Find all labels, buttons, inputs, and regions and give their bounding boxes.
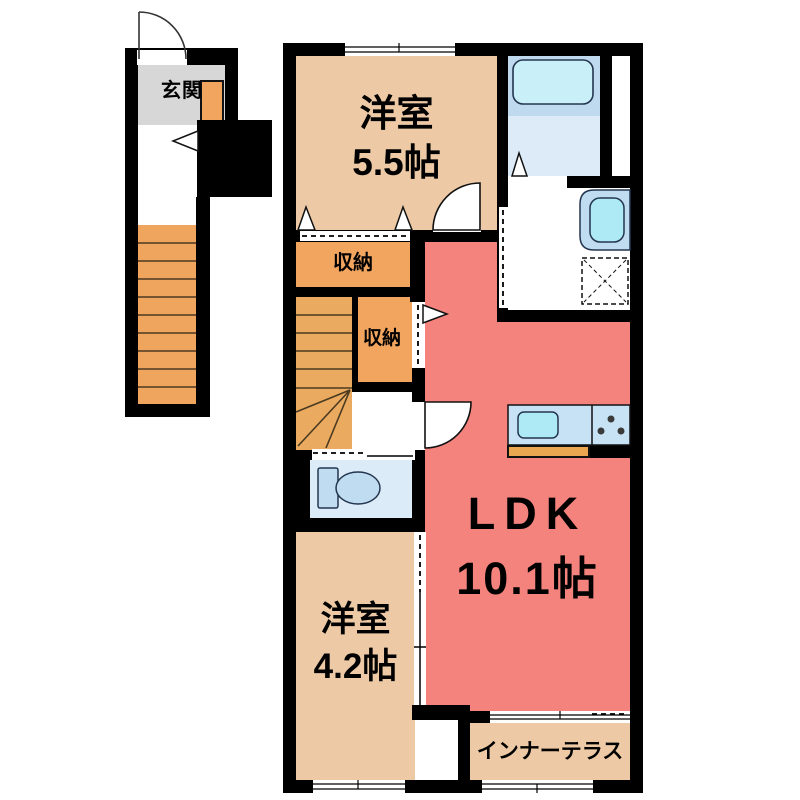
lower-closet-door	[413, 303, 423, 367]
wall	[283, 43, 643, 56]
wall	[497, 56, 508, 188]
wall	[458, 711, 470, 780]
wall	[497, 310, 630, 322]
genkan-label: 玄関	[138, 81, 226, 102]
wall	[296, 458, 310, 518]
wall	[283, 43, 296, 793]
wall	[196, 197, 210, 417]
wall	[125, 48, 138, 417]
wall	[630, 43, 643, 793]
washroom	[508, 188, 630, 310]
entrance-closet-label: 収納	[197, 148, 272, 166]
wall	[470, 711, 490, 723]
outdoor-stairs	[138, 225, 196, 404]
wall	[296, 518, 425, 532]
wall	[412, 368, 425, 402]
window-bottom-bedroom	[313, 780, 405, 793]
wall	[590, 445, 630, 458]
wall	[296, 287, 410, 297]
ldk-type: LDK	[425, 490, 630, 537]
ldk-label: LDK 10.1帖	[425, 490, 630, 603]
wall	[567, 176, 643, 188]
wall	[600, 56, 612, 176]
floor-plan: 玄関 収納 洋室 5.5帖 収納 収納 LDK 10.1帖 洋室 4.2帖 イン…	[0, 0, 800, 800]
kitchen-counter-front	[507, 445, 590, 458]
ldk-size: 10.1帖	[425, 555, 630, 602]
indoor-stairs	[296, 297, 352, 450]
window-ldk-terrace	[490, 711, 630, 723]
wall	[225, 57, 238, 125]
kitchen-counter	[508, 405, 592, 445]
entrance-hall	[138, 125, 196, 225]
bedroom-5-5-door-opening	[433, 226, 481, 232]
bedroom-4-2-type: 洋室	[296, 602, 415, 639]
bedroom-5-5-type: 洋室	[296, 95, 497, 134]
toilet-sliding-door	[312, 449, 415, 460]
bedroom-4-2-label: 洋室 4.2帖	[296, 602, 415, 686]
stair-landing	[358, 392, 412, 450]
inner-terrace-label: インナーテラス	[470, 741, 630, 763]
wall	[410, 230, 425, 302]
window-top	[345, 43, 455, 56]
washroom-sliding-door	[499, 207, 508, 308]
toilet-room	[310, 460, 417, 518]
bathroom-door-opening	[508, 176, 567, 188]
bedroom-4-2-size: 4.2帖	[296, 649, 415, 686]
entrance-door-opening	[137, 50, 187, 65]
upper-closet-label: 収納	[296, 253, 410, 274]
bedroom-5-5-size: 5.5帖	[296, 144, 497, 183]
bathroom-upper	[508, 56, 600, 116]
ldk-door-opening	[412, 402, 425, 448]
bedroom-5-5-label: 洋室 5.5帖	[296, 95, 497, 183]
wall	[125, 404, 210, 417]
window-bottom-terrace	[482, 780, 593, 793]
kitchen-stove-area	[592, 405, 630, 445]
pipe-space	[612, 56, 630, 176]
lower-closet-label: 収納	[350, 329, 414, 349]
bathroom-lower	[508, 116, 600, 176]
ldk-room-upper	[425, 242, 497, 322]
upper-closet-door	[300, 231, 410, 241]
